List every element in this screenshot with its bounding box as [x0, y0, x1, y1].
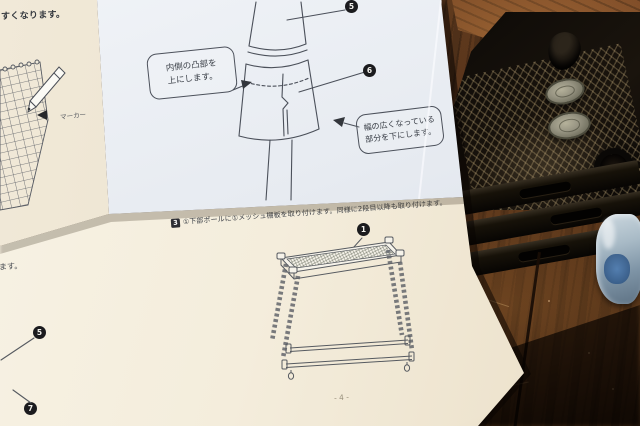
part-badge-5: 5: [345, 0, 358, 13]
jar-lid-ring: [558, 117, 582, 134]
jar-lid-ring: [554, 83, 576, 99]
page-number: - 4 -: [334, 392, 350, 402]
photo-scene: 3 ①下部ポールに①メッシュ棚板を取り付けます。同様に2段目以降も取り付けます。: [0, 0, 640, 426]
arrow-right-icon: [241, 80, 252, 89]
callout-inner-top: 内側の凸部を 上にします。: [146, 46, 238, 101]
part-badge-1: 1: [357, 223, 370, 236]
slab-handle: [550, 207, 603, 225]
part-badge-6: 6: [363, 64, 376, 77]
bag-contents: [604, 254, 630, 284]
left-page-bottom-fragment: ます。: [0, 260, 22, 272]
slab-handle: [519, 181, 572, 199]
bag-highlight: [602, 219, 615, 249]
step-number-box: 3: [171, 218, 181, 228]
pole-diagram: [225, 0, 385, 210]
arrow-left-icon: [333, 117, 345, 127]
wood-speck: [548, 300, 550, 302]
badge-leader-lines: [0, 320, 60, 426]
mesh-panel-drawing: [0, 38, 105, 218]
shelf-diagram: [250, 223, 425, 408]
plastic-bag: [596, 214, 640, 304]
slab-handle: [518, 244, 571, 262]
left-page-top-fragment: すくなります。: [1, 7, 66, 22]
